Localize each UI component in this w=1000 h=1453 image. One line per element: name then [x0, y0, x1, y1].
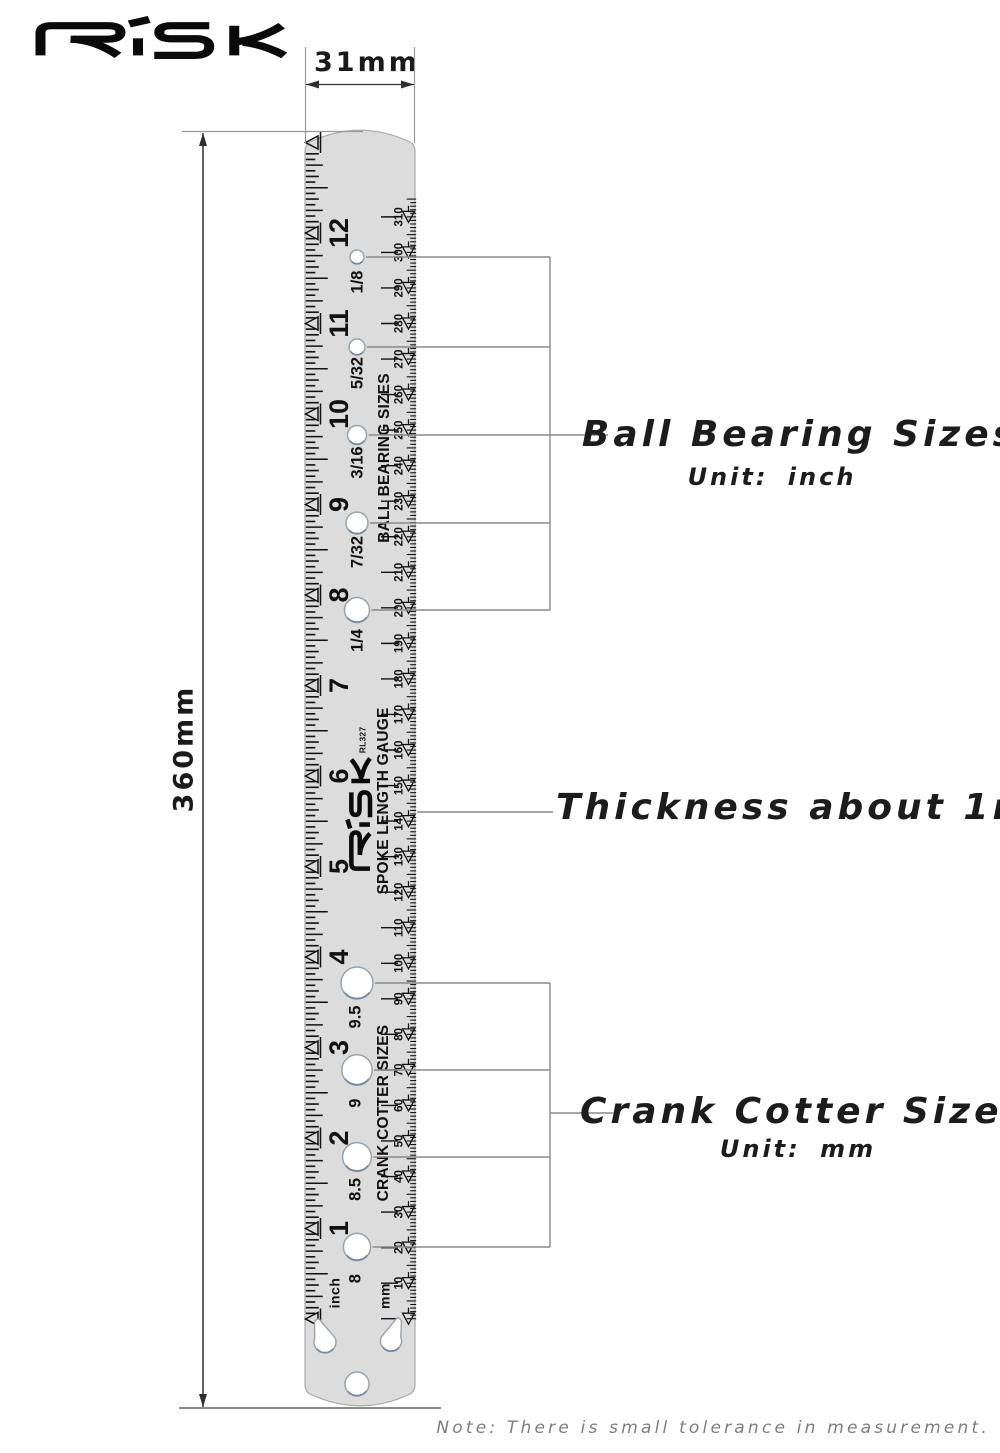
- svg-text:7: 7: [324, 678, 354, 693]
- svg-text:60: 60: [394, 1099, 406, 1112]
- svg-text:120: 120: [394, 883, 406, 902]
- svg-text:10: 10: [324, 399, 354, 429]
- svg-text:1/8: 1/8: [348, 271, 366, 294]
- svg-text:3/16: 3/16: [348, 446, 366, 478]
- svg-text:50: 50: [394, 1135, 406, 1148]
- ruler-diagram: 121110987654321inch310300290280270260250…: [0, 0, 1000, 1453]
- svg-text:40: 40: [394, 1170, 406, 1183]
- svg-text:200: 200: [394, 598, 406, 617]
- ball-bearing-annotation-title: Ball Bearing Sizes: [550, 413, 1000, 457]
- thickness-annotation: Thickness about 1mm: [556, 786, 1000, 830]
- svg-text:180: 180: [394, 669, 406, 688]
- svg-text:110: 110: [394, 918, 406, 937]
- svg-text:6: 6: [324, 768, 354, 783]
- svg-text:140: 140: [394, 812, 406, 831]
- svg-text:310: 310: [394, 207, 406, 226]
- svg-text:160: 160: [394, 740, 406, 759]
- svg-text:90: 90: [394, 992, 406, 1005]
- svg-text:BALL BEARING SIZES: BALL BEARING SIZES: [376, 373, 393, 543]
- crank-cotter-annotation-title: Crank Cotter Sizes: [554, 1090, 1000, 1134]
- svg-text:190: 190: [394, 634, 406, 653]
- svg-text:280: 280: [394, 314, 406, 333]
- svg-text:230: 230: [394, 492, 406, 511]
- svg-text:240: 240: [394, 456, 406, 475]
- svg-text:SPOKE LENGTH GAUGE: SPOKE LENGTH GAUGE: [375, 707, 392, 894]
- svg-text:150: 150: [394, 776, 406, 795]
- product-diagram: 31mm 360mm 121110987654321inch3103002902…: [0, 0, 1000, 1453]
- ball-bearing-annotation-unit: Unit: inch: [522, 462, 1000, 492]
- note-text: Note: There is small tolerance in measur…: [436, 1417, 990, 1439]
- svg-text:290: 290: [394, 278, 406, 297]
- svg-text:11: 11: [324, 309, 354, 338]
- svg-text:CRANK COTTER SIZES: CRANK COTTER SIZES: [375, 1025, 392, 1202]
- svg-text:7/32: 7/32: [348, 536, 366, 568]
- crank-cotter-annotation-unit: Unit: mm: [548, 1134, 1000, 1164]
- svg-text:9: 9: [324, 497, 354, 512]
- svg-text:300: 300: [394, 243, 406, 262]
- svg-text:250: 250: [394, 421, 406, 440]
- svg-text:12: 12: [324, 218, 354, 248]
- svg-text:1: 1: [324, 1221, 354, 1236]
- svg-text:30: 30: [394, 1206, 406, 1219]
- svg-text:9: 9: [346, 1099, 364, 1108]
- svg-text:9.5: 9.5: [346, 1006, 364, 1029]
- svg-text:260: 260: [394, 385, 406, 404]
- svg-text:inch: inch: [327, 1278, 343, 1309]
- svg-text:100: 100: [394, 954, 406, 973]
- svg-text:8: 8: [346, 1274, 364, 1283]
- svg-text:mm: mm: [377, 1283, 393, 1309]
- svg-text:170: 170: [394, 705, 406, 724]
- svg-text:2: 2: [324, 1130, 354, 1145]
- svg-text:3: 3: [324, 1040, 354, 1055]
- svg-text:220: 220: [394, 527, 406, 546]
- svg-text:1/4: 1/4: [348, 628, 366, 652]
- svg-text:8.5: 8.5: [346, 1178, 364, 1201]
- svg-text:10: 10: [394, 1277, 406, 1290]
- svg-text:80: 80: [394, 1028, 406, 1041]
- svg-text:RL327: RL327: [357, 727, 367, 754]
- svg-text:5/32: 5/32: [348, 357, 366, 389]
- svg-text:210: 210: [394, 563, 406, 582]
- svg-text:4: 4: [324, 949, 354, 964]
- svg-text:130: 130: [394, 847, 406, 866]
- svg-text:270: 270: [394, 349, 406, 368]
